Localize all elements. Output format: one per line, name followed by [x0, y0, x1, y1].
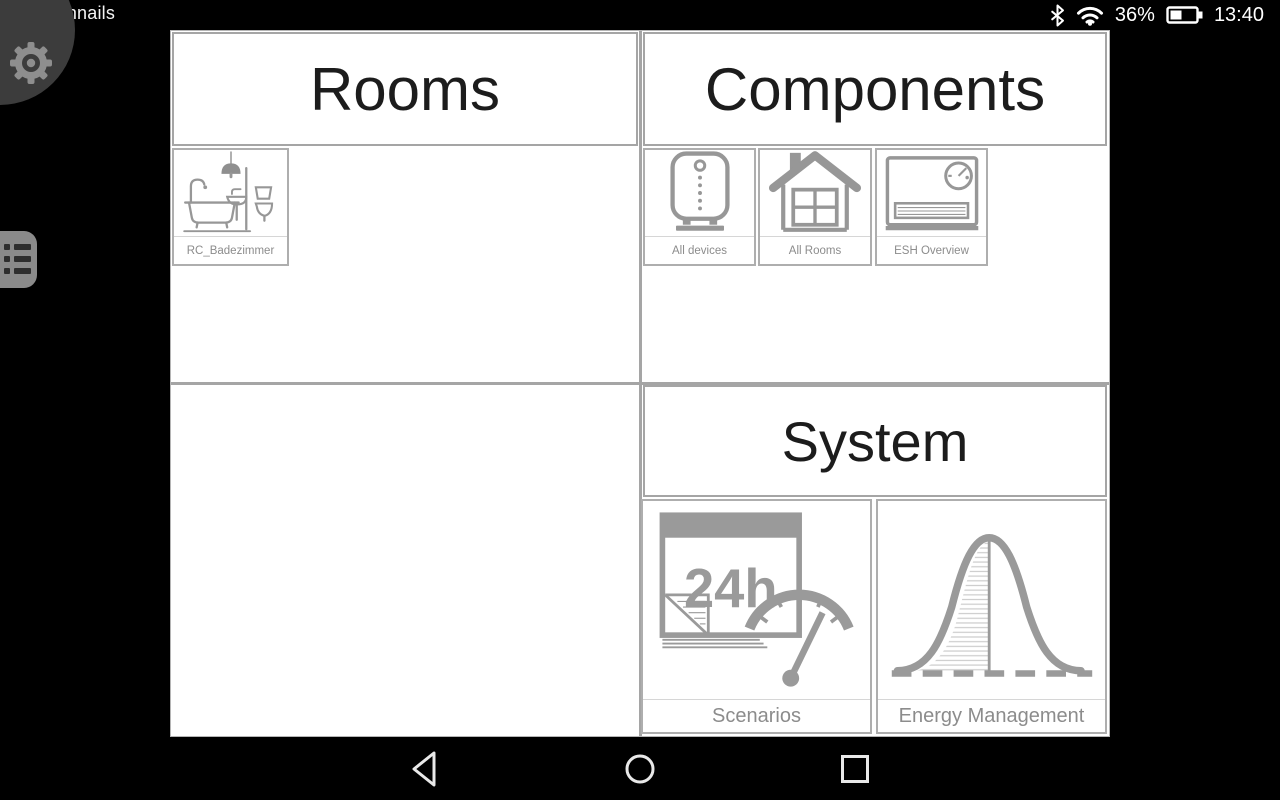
components-header: Components [643, 32, 1107, 146]
tile-label: ESH Overview [877, 236, 986, 264]
status-icons: 36% 13:40 [1050, 0, 1264, 30]
tile-all-devices[interactable]: All devices [643, 148, 756, 266]
tile-energy-management[interactable]: Energy Management [876, 499, 1107, 734]
smart-device-icon [645, 150, 754, 236]
back-icon [406, 749, 440, 789]
components-title: Components [705, 55, 1045, 124]
sitemap-menu-button[interactable] [0, 231, 37, 288]
gear-icon [10, 42, 52, 84]
system-header: System [643, 385, 1107, 497]
heater-icon [877, 150, 986, 236]
bluetooth-icon [1050, 4, 1065, 27]
recents-button[interactable] [829, 743, 881, 795]
wifi-icon [1076, 5, 1104, 26]
tile-label: All Rooms [760, 236, 870, 264]
bathroom-icon [174, 150, 287, 236]
tile-label: RC_Badezimmer [174, 236, 287, 264]
tile-all-rooms[interactable]: All Rooms [758, 148, 872, 266]
home-icon [623, 752, 657, 786]
tile-esh-overview[interactable]: ESH Overview [875, 148, 988, 266]
settings-button[interactable] [0, 0, 75, 105]
bell-curve-icon [878, 501, 1105, 699]
house-icon [760, 150, 870, 236]
home-button[interactable] [614, 743, 666, 795]
system-title: System [782, 409, 969, 474]
clock: 13:40 [1214, 4, 1264, 27]
main-panel: Rooms Components System [170, 30, 1110, 737]
rooms-header: Rooms [172, 32, 638, 146]
screen: 8inchnails 36% [0, 0, 1280, 800]
tile-label: Scenarios [643, 699, 870, 732]
back-button[interactable] [397, 743, 449, 795]
tile-label: Energy Management [878, 699, 1105, 732]
battery-percent: 36% [1115, 4, 1155, 27]
recents-icon [838, 752, 872, 786]
tile-label: All devices [645, 236, 754, 264]
battery-icon [1166, 5, 1203, 25]
rooms-empty-area [171, 385, 639, 736]
status-bar: 8inchnails 36% [0, 0, 1280, 30]
tile-rc-badezimmer[interactable]: RC_Badezimmer [172, 148, 289, 266]
tile-scenarios[interactable]: 24h [641, 499, 872, 734]
rooms-title: Rooms [310, 55, 500, 124]
android-nav-bar [0, 737, 1280, 800]
list-menu-icon [4, 242, 31, 277]
calendar-gauge-icon: 24h [643, 501, 870, 699]
